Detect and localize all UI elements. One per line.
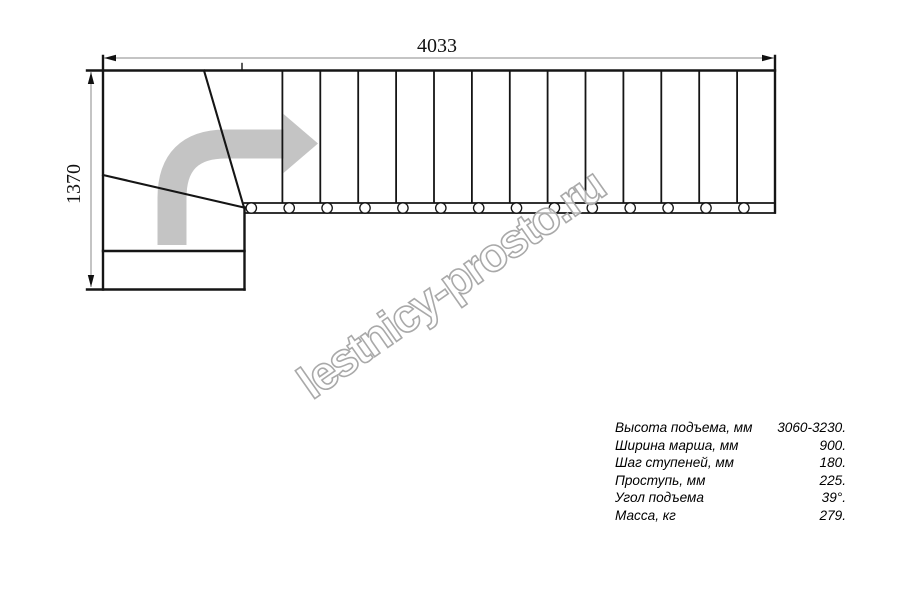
spec-row-rise-height: Высота подъема, мм 3060-3230.: [615, 419, 846, 437]
dimension-height-arrow-bottom: [88, 275, 94, 287]
baluster-circle: [739, 203, 749, 213]
baluster-circle: [625, 203, 635, 213]
spec-row-mass: Масса, кг 279.: [615, 507, 846, 525]
dimension-width-arrow-right: [762, 55, 774, 61]
spec-label: Угол подъема: [615, 489, 704, 507]
baluster-circle: [663, 203, 673, 213]
spec-value: 225.: [820, 472, 846, 490]
dimension-width: 4033: [104, 35, 774, 61]
spec-value: 39°.: [822, 489, 846, 507]
baluster-circle: [701, 203, 711, 213]
baluster-circle: [284, 203, 294, 213]
baluster-circle: [360, 203, 370, 213]
spec-row-rise-angle: Угол подъема 39°.: [615, 489, 846, 507]
spec-row-flight-width: Ширина марша, мм 900.: [615, 437, 846, 455]
dimension-height-label: 1370: [63, 164, 85, 204]
baluster-circle: [436, 203, 446, 213]
spec-label: Масса, кг: [615, 507, 676, 525]
watermark: lestnicy-prosto.ru: [287, 158, 613, 408]
spec-value: 3060-3230.: [777, 419, 846, 437]
stair-plan-page: 4033 1370 lestnicy-prosto.ru Высота подъ…: [0, 0, 900, 600]
spec-label: Ширина марша, мм: [615, 437, 739, 455]
baluster-circle: [398, 203, 408, 213]
spec-value: 279.: [820, 507, 846, 525]
dimension-width-arrow-left: [104, 55, 116, 61]
spec-label: Шаг ступеней, мм: [615, 454, 734, 472]
dimension-height: 1370: [63, 72, 94, 287]
baluster-circle: [474, 203, 484, 213]
baluster-circle: [322, 203, 332, 213]
baluster-circle: [246, 203, 256, 213]
baluster-circles: [246, 203, 749, 213]
spec-row-step-pitch: Шаг ступеней, мм 180.: [615, 454, 846, 472]
specs-table: Высота подъема, мм 3060-3230. Ширина мар…: [615, 419, 846, 524]
arrow-head: [284, 114, 319, 173]
dimension-width-label: 4033: [417, 35, 457, 57]
spec-value: 180.: [820, 454, 846, 472]
spec-row-tread-depth: Проступь, мм 225.: [615, 472, 846, 490]
spec-value: 900.: [820, 437, 846, 455]
dimension-height-arrow-top: [88, 72, 94, 84]
spec-label: Высота подъема, мм: [615, 419, 752, 437]
spec-label: Проступь, мм: [615, 472, 705, 490]
tread-lines: [282, 71, 737, 204]
